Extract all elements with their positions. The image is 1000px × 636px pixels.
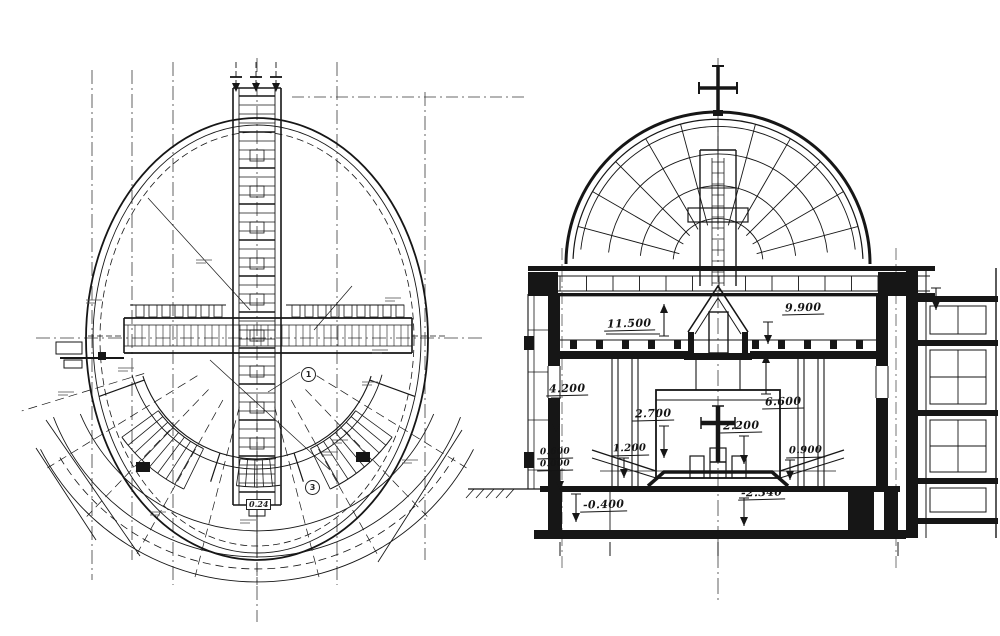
- dim-2-700: 2.700: [632, 407, 675, 421]
- plan-marker-1: 1: [301, 367, 316, 382]
- dim-minus-2-340: -2.340: [738, 486, 786, 500]
- plan-boxed-label: 0.24: [246, 499, 271, 510]
- dim-6-600: 6.600: [762, 395, 805, 409]
- dim-0-000: 0.000: [537, 460, 573, 472]
- section-view: [466, 58, 998, 600]
- plan-view: [22, 58, 524, 622]
- plan-marker-3: 3: [305, 480, 320, 495]
- dim-0-900: 0.900: [786, 445, 826, 458]
- dim-11-500: 11.500: [604, 317, 655, 331]
- architectural-drawing: [0, 0, 1000, 636]
- dim-1-200: 1.200: [610, 443, 650, 456]
- dim-9-900: 9.900: [782, 301, 825, 315]
- dim-minus-0-400: -0.400: [580, 498, 628, 512]
- drawing-sheet: 11.500 9.900 4.200 2.700 2.200 6.600 0.6…: [0, 0, 1000, 636]
- dim-2-200: 2.200: [720, 419, 763, 433]
- dim-4-200: 4.200: [546, 382, 589, 396]
